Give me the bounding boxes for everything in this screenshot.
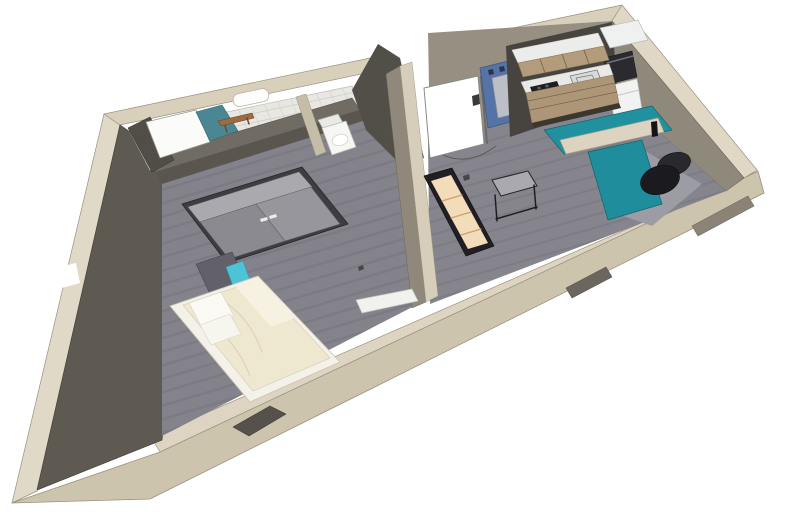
coat-hook-1	[488, 69, 494, 75]
floorplan-render-canvas[interactable]	[0, 0, 800, 524]
desk-bottle	[651, 121, 658, 137]
burner-2	[545, 85, 549, 88]
apartment-3d-render	[0, 0, 800, 524]
light-switch	[472, 94, 480, 106]
entrance-door-leaf	[424, 76, 484, 158]
burner-1	[537, 87, 541, 90]
coat-hook-2	[499, 66, 505, 72]
